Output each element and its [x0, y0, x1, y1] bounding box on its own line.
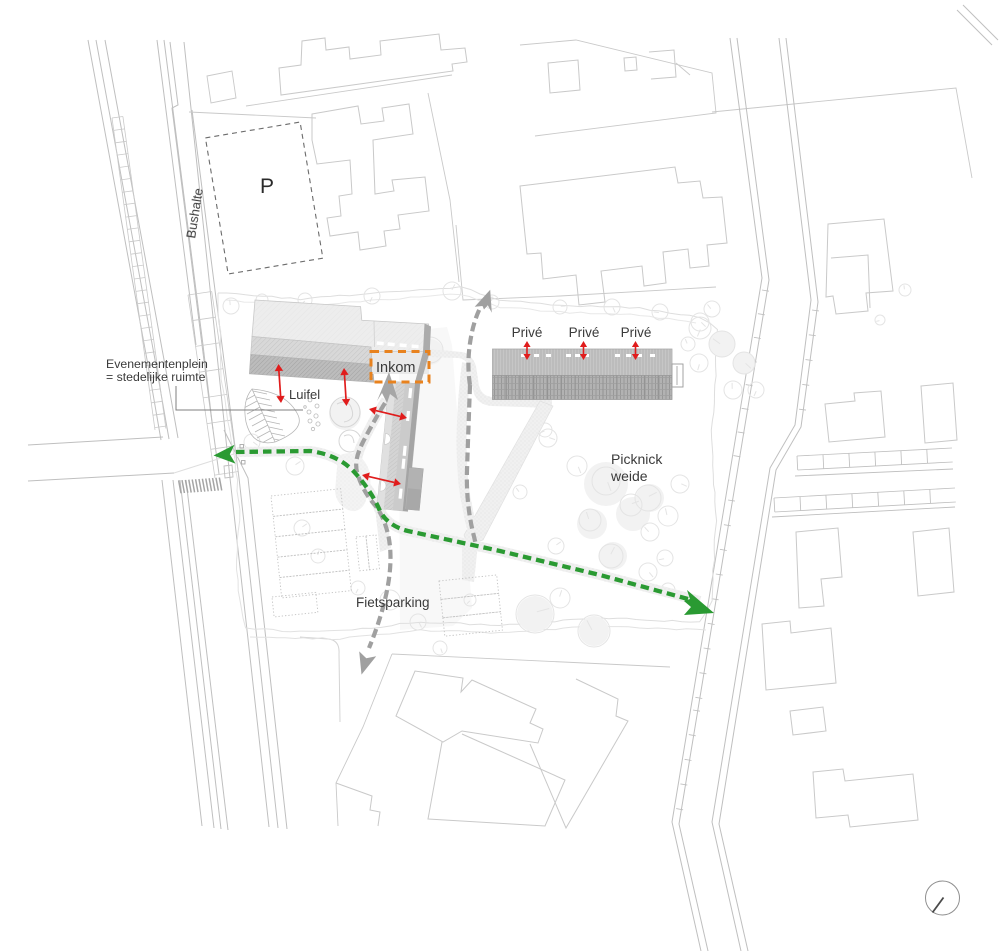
- svg-text:Privé: Privé: [621, 325, 652, 340]
- svg-text:Privé: Privé: [569, 325, 600, 340]
- svg-text:Evenementenplein: Evenementenplein: [106, 357, 208, 371]
- svg-text:Luifel: Luifel: [289, 387, 320, 402]
- svg-text:Picknick: Picknick: [611, 451, 663, 467]
- svg-text:weide: weide: [610, 468, 648, 484]
- svg-text:= stedelijke ruimte: = stedelijke ruimte: [106, 370, 206, 384]
- svg-text:Inkom: Inkom: [376, 360, 416, 376]
- svg-text:P: P: [260, 175, 274, 198]
- svg-text:Fietsparking: Fietsparking: [356, 595, 430, 610]
- svg-text:Privé: Privé: [512, 325, 543, 340]
